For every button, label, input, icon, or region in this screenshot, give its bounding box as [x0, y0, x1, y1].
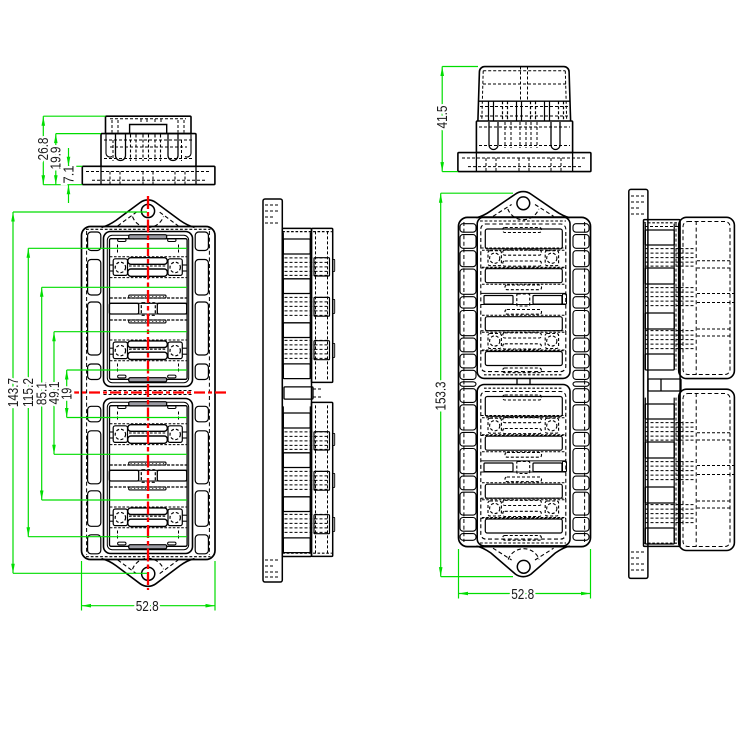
svg-text:41.5: 41.5 — [434, 106, 451, 129]
svg-text:19: 19 — [59, 388, 76, 400]
svg-text:153.3: 153.3 — [433, 382, 450, 411]
svg-text:7.1: 7.1 — [60, 166, 77, 184]
svg-text:52.8: 52.8 — [136, 598, 159, 615]
svg-text:52.8: 52.8 — [511, 586, 534, 603]
